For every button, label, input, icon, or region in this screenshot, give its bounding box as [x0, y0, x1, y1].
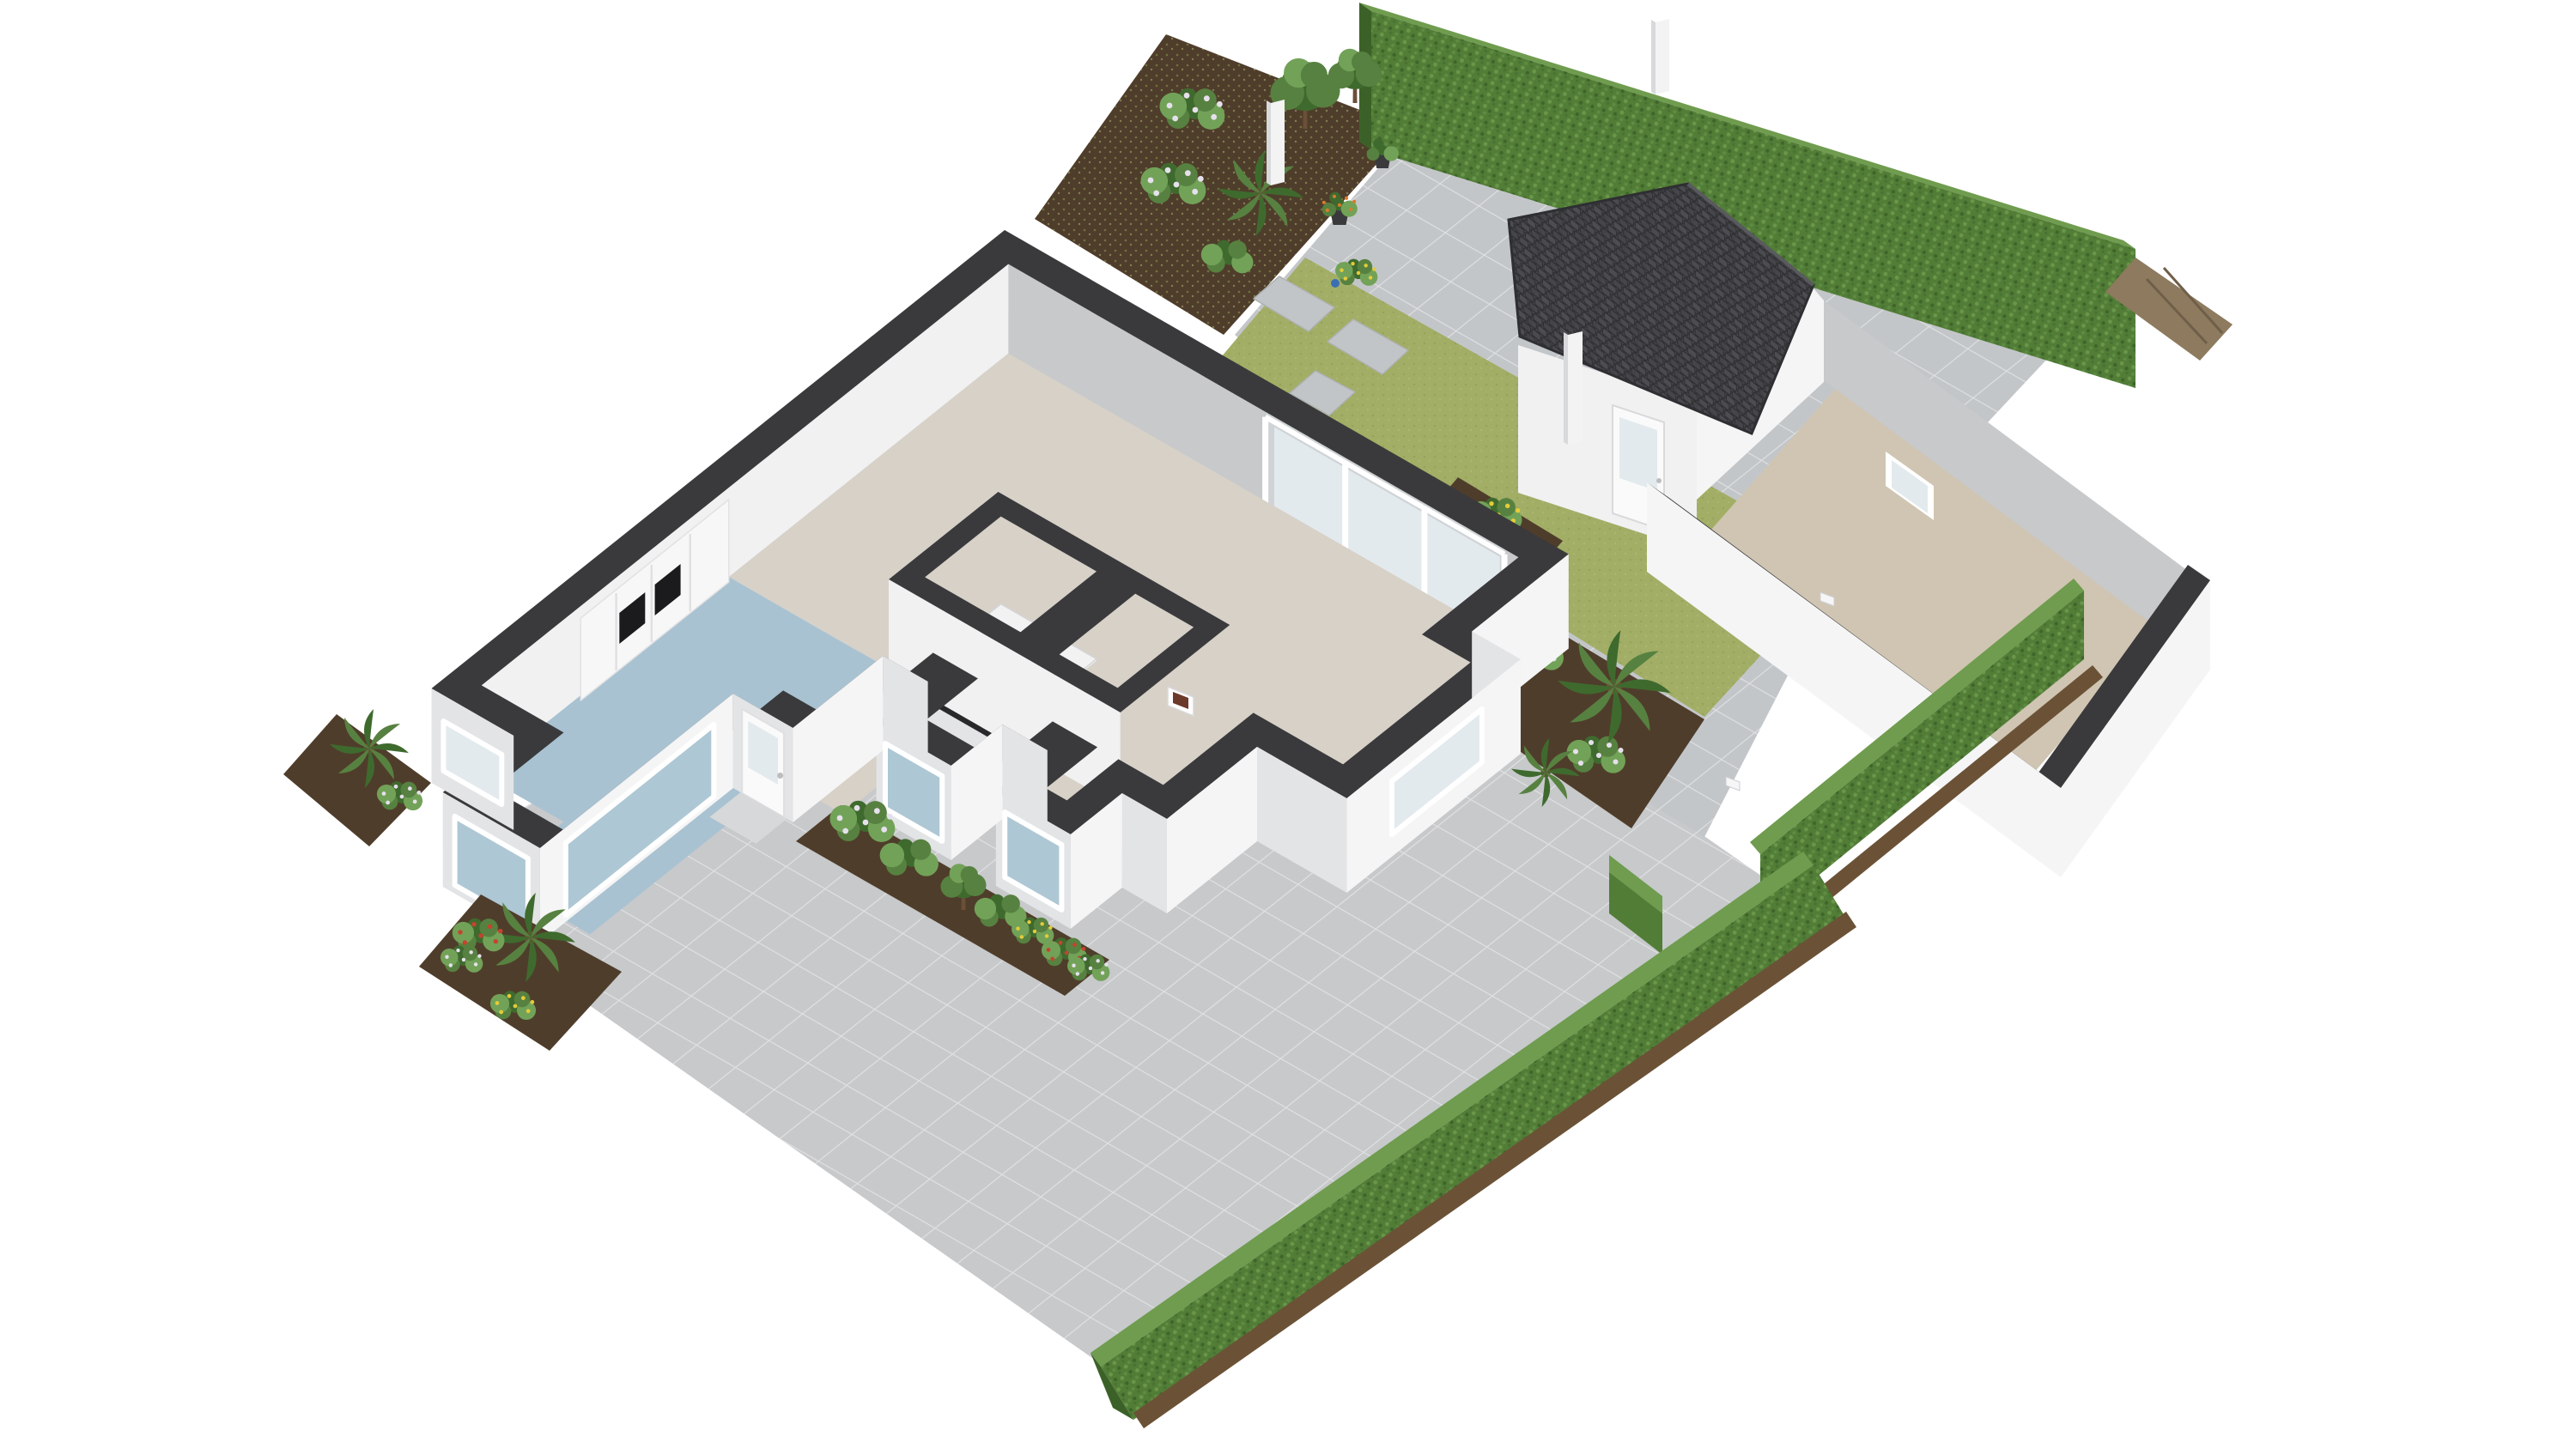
floorplan-3d-render	[0, 0, 2576, 1449]
garden-post-lawn	[1564, 331, 1583, 445]
garden-post-hedge	[1651, 19, 1669, 94]
floorplan-3d-canvas	[0, 0, 2576, 1449]
planting-bed-west-corner	[283, 708, 431, 846]
garden-post-bed	[1267, 100, 1285, 185]
scene-root	[283, 3, 2233, 1428]
